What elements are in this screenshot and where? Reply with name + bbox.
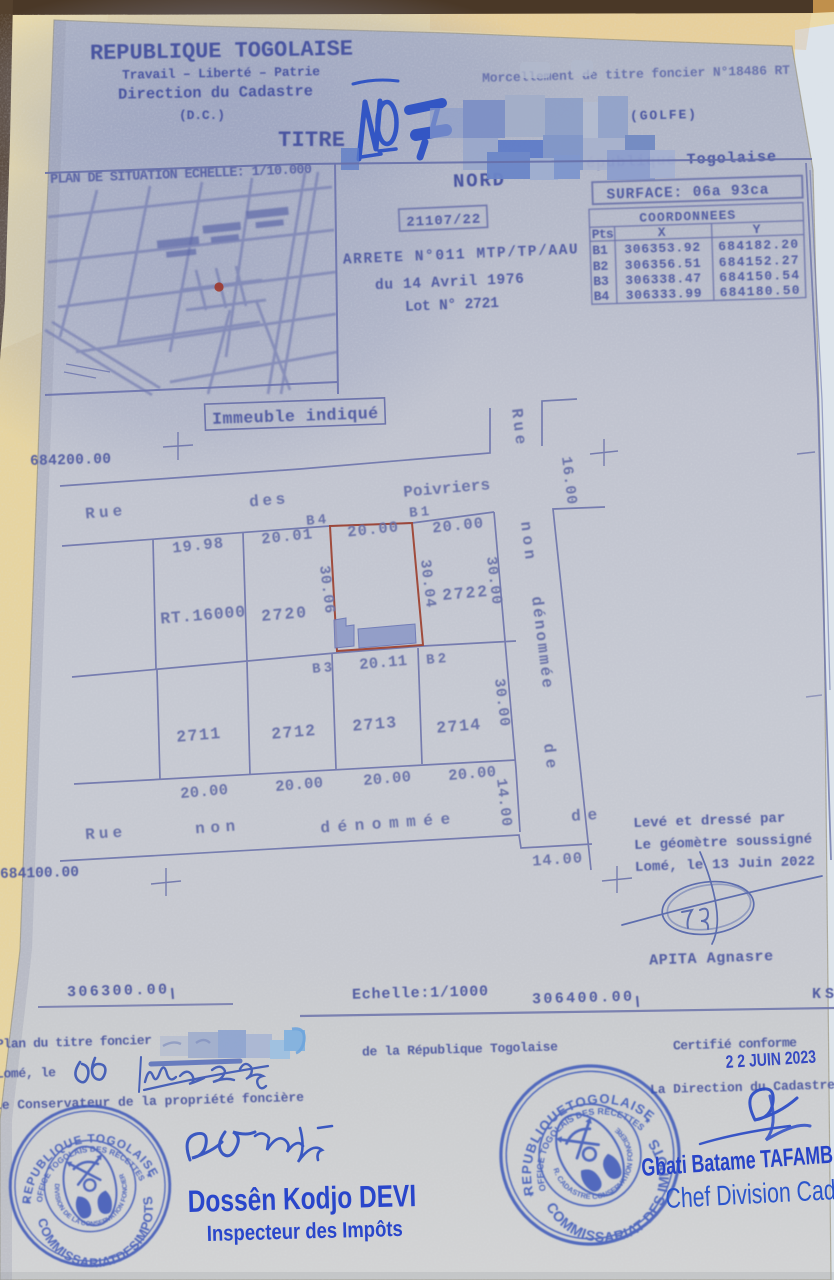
svg-text:X: X <box>658 225 666 240</box>
svg-text:684100.00: 684100.00 <box>0 865 79 883</box>
svg-text:306353.92: 306353.92 <box>624 240 701 257</box>
svg-text:B4: B4 <box>593 289 609 304</box>
svg-text:Pts: Pts <box>592 227 615 243</box>
svg-text:des: des <box>249 490 286 511</box>
svg-text:non: non <box>195 818 236 839</box>
svg-text:COORDONNEES: COORDONNEES <box>639 208 736 226</box>
svg-text:306400.00: 306400.00 <box>532 989 632 1009</box>
svg-text:Echelle:1/1000: Echelle:1/1000 <box>352 983 488 1004</box>
svg-text:Direction du Cadastre: Direction du Cadastre <box>118 82 313 103</box>
svg-text:Rue: Rue <box>85 502 123 523</box>
svg-text:B1: B1 <box>592 243 608 258</box>
svg-text:B3: B3 <box>593 274 609 289</box>
svg-text:(D.C.): (D.C.) <box>179 108 225 123</box>
svg-text:306333.99: 306333.99 <box>625 286 702 303</box>
svg-text:14.00: 14.00 <box>532 849 583 870</box>
svg-text:Dossên Kodjo DEVI: Dossên Kodjo DEVI <box>187 1178 416 1218</box>
svg-text:Y: Y <box>752 222 760 237</box>
svg-text:Lomé, le: Lomé, le <box>0 1065 56 1082</box>
svg-text:21107/22: 21107/22 <box>406 212 481 231</box>
svg-text:684200.00: 684200.00 <box>30 452 111 470</box>
svg-text:Rue: Rue <box>85 824 123 845</box>
svg-text:REPUBLIQUE TOGOLAISE: REPUBLIQUE TOGOLAISE <box>90 37 353 67</box>
svg-text:684182.20: 684182.20 <box>718 237 799 255</box>
svg-text:TITRE: TITRE <box>278 128 345 153</box>
svg-text:684180.50: 684180.50 <box>719 283 800 301</box>
svg-text:B2: B2 <box>593 259 609 274</box>
svg-text:306300.00: 306300.00 <box>67 982 167 1002</box>
